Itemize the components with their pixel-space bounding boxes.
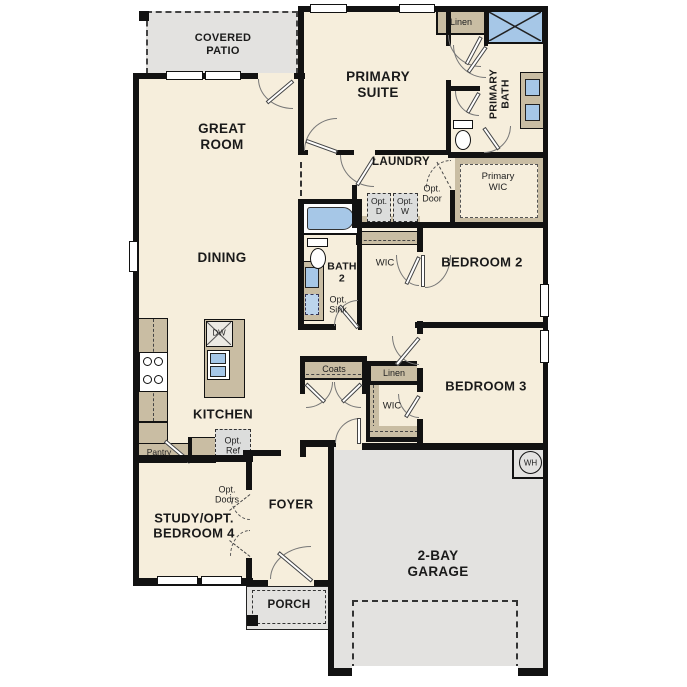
shower-x — [489, 12, 541, 41]
water-heater-circle: WH — [519, 451, 542, 474]
burner — [154, 357, 163, 366]
front-door-opening — [268, 580, 314, 586]
window — [540, 284, 549, 317]
sink-basin — [210, 366, 226, 377]
window — [310, 4, 347, 13]
toilet-bowl — [310, 248, 326, 269]
window — [205, 71, 241, 80]
wall — [484, 6, 488, 46]
toilet-bowl — [455, 130, 471, 150]
dishwasher-label: DW — [212, 328, 225, 337]
bath2-opt-sink — [305, 294, 319, 315]
garage-door-dashed — [352, 600, 518, 670]
window — [540, 330, 549, 363]
primary-wic-label: Primary WIC — [482, 172, 515, 194]
wic3-label: WIC — [383, 402, 401, 413]
linen-top-label: Linen — [450, 17, 472, 27]
study-label: STUDY/OPT. BEDROOM 4 — [153, 511, 234, 542]
primary-toilet — [451, 120, 475, 153]
wall — [366, 361, 370, 442]
primary-suite-label: PRIMARY SUITE — [346, 69, 410, 101]
window — [201, 576, 242, 585]
opt-washer-label: Opt. W — [397, 197, 413, 217]
shelf-edge — [370, 431, 418, 432]
wall — [133, 73, 139, 585]
wall — [300, 440, 336, 447]
garage-label: 2-BAY GARAGE — [407, 548, 468, 580]
kitchen-label: KITCHEN — [193, 406, 253, 421]
wall — [300, 357, 305, 394]
wall — [375, 150, 448, 155]
opt-door-label: Opt. Door — [422, 184, 442, 205]
garage-door-opening-int — [336, 443, 362, 450]
foyer-label: FOYER — [269, 498, 314, 513]
opt-dryer-label: Opt. D — [371, 197, 387, 217]
opt-doors-label: Opt. Doors — [215, 485, 239, 506]
wall — [300, 356, 367, 360]
garage-door-opening — [352, 666, 518, 676]
wall — [366, 437, 422, 442]
pantry-label: Pantry — [147, 448, 172, 458]
wic2-label: WIC — [376, 259, 394, 270]
burner — [154, 375, 163, 384]
opt-sink-label: Opt. Sink — [329, 295, 347, 316]
water-heater-label: WH — [524, 458, 537, 467]
window — [129, 241, 138, 272]
opt-ref-label: Opt. Ref — [224, 436, 241, 457]
window — [399, 4, 435, 13]
wall — [448, 152, 548, 158]
window — [157, 576, 198, 585]
patio-corner-post — [139, 11, 149, 21]
burner — [143, 357, 152, 366]
floor-plan: WH COVERED PATIO GREAT ROOM PRIMARY SUIT… — [0, 0, 687, 687]
bath2-tub — [307, 207, 354, 230]
linen-hall-label: Linen — [383, 368, 405, 378]
wall — [446, 80, 451, 155]
burner — [143, 375, 152, 384]
bed2-door-opening — [417, 288, 423, 321]
primary-bath-sink — [525, 79, 540, 96]
toilet-tank — [453, 120, 473, 129]
cased-opening-dashes — [300, 162, 302, 196]
porch-post — [247, 615, 258, 626]
bedroom3-label: BEDROOM 3 — [445, 378, 526, 393]
wall — [366, 382, 422, 385]
wall — [298, 199, 362, 203]
wall — [243, 450, 281, 456]
bedroom2-label: BEDROOM 2 — [441, 254, 522, 269]
covered-patio-label: COVERED PATIO — [195, 32, 252, 58]
wall — [415, 322, 548, 328]
primary-shower — [487, 10, 544, 44]
coats-label: Coats — [322, 364, 346, 374]
wall — [298, 6, 304, 155]
wall — [352, 222, 548, 228]
wic2-shelf — [356, 231, 418, 245]
wall — [298, 199, 304, 330]
wall — [328, 443, 334, 675]
bath2-tub-surround — [302, 202, 359, 235]
dining-label: DINING — [197, 250, 246, 266]
cooktop — [139, 352, 168, 392]
toilet-tank — [307, 238, 328, 247]
door-leaf — [357, 418, 361, 444]
great-room-label: GREAT ROOM — [198, 121, 246, 153]
primary-bath-sink — [525, 104, 540, 121]
bath2-label: BATH 2 — [327, 261, 357, 286]
kitchen-sink — [207, 350, 230, 380]
porch-label: PORCH — [267, 599, 310, 613]
sink-basin — [210, 353, 226, 364]
window — [166, 71, 203, 80]
shelf-edge — [359, 240, 415, 241]
primary-bath-label: PRIMARY BATH — [488, 69, 513, 119]
water-heater-box: WH — [512, 449, 546, 479]
laundry-label: LAUNDRY — [372, 156, 430, 170]
